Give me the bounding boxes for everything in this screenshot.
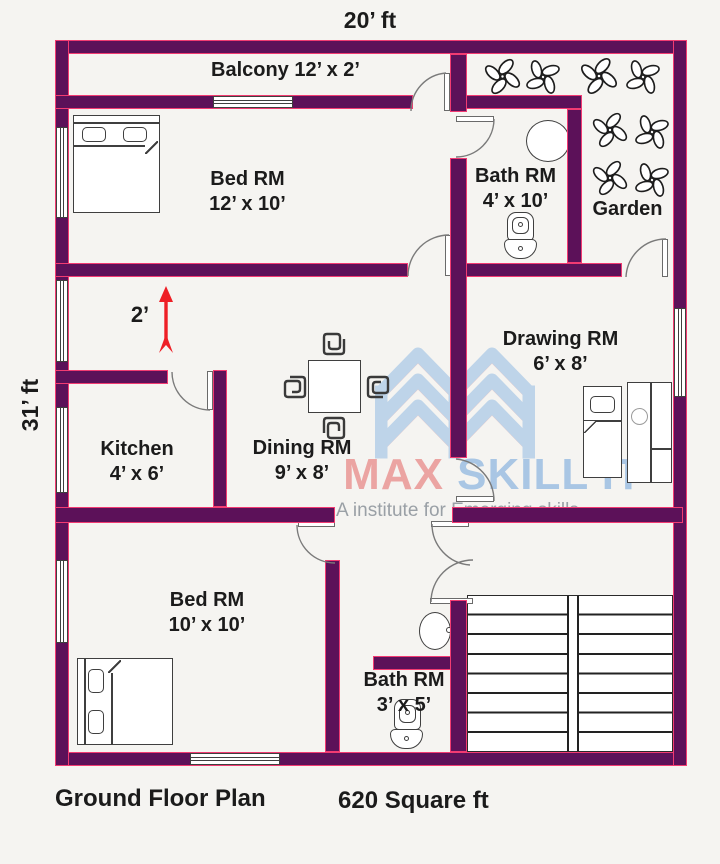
door-arc <box>408 235 449 276</box>
chair-icon <box>324 334 344 354</box>
chair-icon <box>324 418 344 438</box>
room-name: Drawing RM <box>478 327 643 352</box>
toilet-dot <box>404 736 409 741</box>
bedroom-top-bottom-wall <box>55 263 408 277</box>
window <box>56 407 68 493</box>
bath-top-wall <box>450 95 582 109</box>
toilet-dot <box>518 246 523 251</box>
room-label-drawing: Drawing RM 6’ x 8’ <box>478 327 643 377</box>
room-dims: 3’ x 5’ <box>338 693 470 718</box>
door-leaf <box>456 116 494 122</box>
bed-headboard-line <box>73 122 160 124</box>
room-dims: 4’ x 6’ <box>68 462 206 487</box>
room-label-balcony: Balcony 12’ x 2’ <box>198 58 373 83</box>
room-label-bath-bottom: Bath RM 3’ x 5’ <box>338 668 470 718</box>
dimension-arrow-icon <box>159 286 173 353</box>
kitchen-top-wall <box>55 370 168 384</box>
pillow <box>590 396 615 413</box>
staircase <box>467 595 673 752</box>
door-leaf <box>456 496 494 502</box>
room-name: Bed RM <box>180 167 315 192</box>
bed-fold <box>584 421 596 433</box>
room-name: Dining RM <box>228 436 376 461</box>
flower-icon <box>589 109 631 151</box>
top-dimension-label: 20’ ft <box>320 8 420 33</box>
floor-plan-canvas: MAX SKILL IT A institute for Emerging sk… <box>0 0 720 864</box>
room-label-bath-top: Bath RM 4’ x 10’ <box>453 164 578 214</box>
door-arc <box>432 524 470 565</box>
sink-icon <box>526 120 570 162</box>
exterior-wall-top <box>55 40 687 54</box>
pillow <box>123 127 147 142</box>
door-arc <box>626 239 666 277</box>
middle-wall-left <box>55 507 335 523</box>
toilet-dot <box>518 222 523 227</box>
room-dims: 9’ x 8’ <box>228 461 376 486</box>
flower-icon <box>614 48 672 106</box>
wardrobe-shelf-line <box>650 448 672 450</box>
window <box>56 280 68 362</box>
wardrobe-swirl <box>631 408 648 425</box>
flower-icon <box>589 157 631 199</box>
door-leaf <box>662 239 668 277</box>
bed-headboard-line <box>84 658 86 745</box>
room-dims: 12’ x 10’ <box>180 192 315 217</box>
room-name: Kitchen <box>68 437 206 462</box>
pillow <box>88 669 104 693</box>
kitchen-right-wall <box>213 370 227 507</box>
bed-fold <box>145 141 158 154</box>
bed-blanket-line <box>74 145 146 147</box>
room-label-bed-top: Bed RM 12’ x 10’ <box>180 167 315 217</box>
door-arc <box>297 525 335 563</box>
door-arc <box>456 119 494 157</box>
balcony-name: Balcony <box>211 59 289 81</box>
chair-icon <box>285 377 305 397</box>
window <box>56 560 68 643</box>
room-dims: 6’ x 8’ <box>478 352 643 377</box>
window <box>674 308 686 397</box>
door-arc <box>411 73 446 111</box>
room-dims: 10’ x 10’ <box>138 613 276 638</box>
window <box>190 753 280 765</box>
area-label: 620 Square ft <box>338 788 538 813</box>
window <box>56 127 68 218</box>
drawing-room-top-wall <box>450 263 622 277</box>
exterior-wall-bottom <box>55 752 687 766</box>
room-name: Bath RM <box>453 164 578 189</box>
wardrobe-divider <box>650 382 652 483</box>
pillow <box>88 710 104 734</box>
room-label-dining: Dining RM 9’ x 8’ <box>228 436 376 486</box>
corridor-dimension-label: 2’ <box>124 302 156 327</box>
room-dims: 4’ x 10’ <box>453 189 578 214</box>
flower-icon <box>481 55 524 98</box>
middle-wall-right <box>452 507 683 523</box>
bath-left-upper-wall <box>450 54 467 112</box>
floor-title: Ground Floor Plan <box>55 786 285 811</box>
bedroom-bottom-right-wall <box>325 560 340 752</box>
left-dimension-label: 31’ ft <box>18 365 48 445</box>
room-label-garden: Garden <box>580 197 675 222</box>
stair-center-rail <box>567 596 579 751</box>
bed-fold <box>108 660 121 673</box>
flower-icon <box>577 54 621 98</box>
pillow <box>82 127 106 142</box>
balcony-dims: 12’ x 2’ <box>294 59 360 81</box>
room-name: Bed RM <box>138 588 276 613</box>
bed-blanket-line <box>111 673 113 744</box>
window <box>213 96 293 108</box>
dining-table <box>308 360 361 413</box>
exterior-wall-right <box>673 40 687 766</box>
room-label-bed-bottom: Bed RM 10’ x 10’ <box>138 588 276 638</box>
room-name: Bath RM <box>338 668 470 693</box>
room-label-kitchen: Kitchen 4’ x 6’ <box>68 437 206 487</box>
door-arc <box>172 372 210 410</box>
